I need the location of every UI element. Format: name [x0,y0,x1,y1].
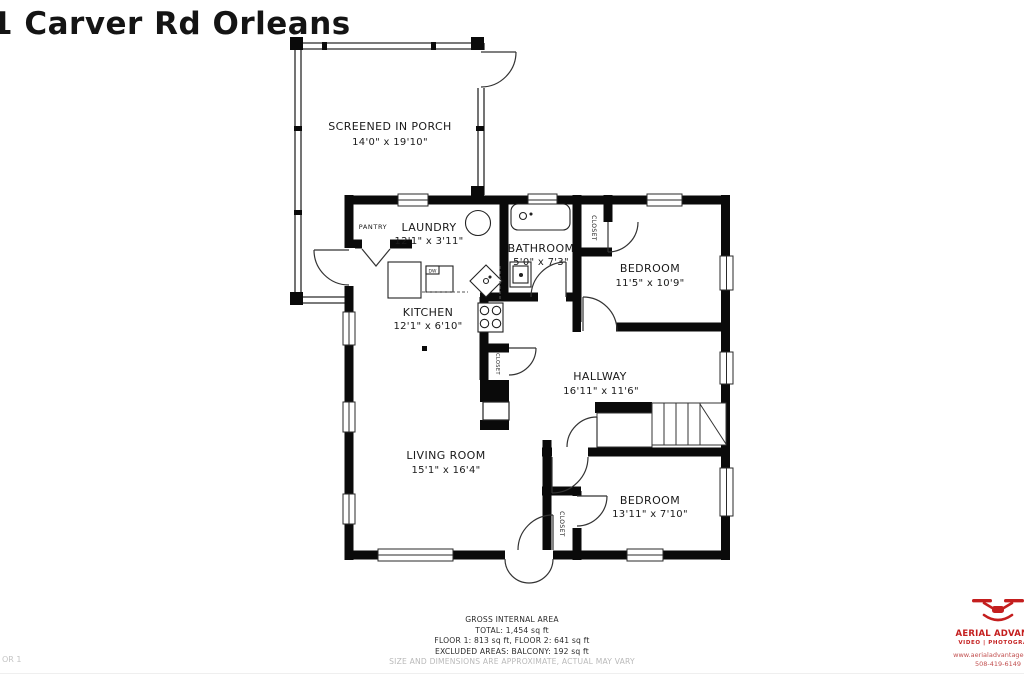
dishwasher-label: DW [429,269,437,275]
washer [466,211,491,236]
porch-posts [290,37,484,305]
closet1-label: CLOSET [590,215,597,241]
room-dims-living: 15'1" x 16'4" [411,465,480,476]
window-bedroom2-right [720,468,733,516]
room-label-kitchen: KITCHEN [403,306,453,319]
room-dims-porch: 14'0" x 19'10" [352,137,428,148]
room-label-hallway: HALLWAY [573,370,627,383]
door-closet1 [608,222,638,252]
window-laundry [398,194,428,206]
window-bedroom1-right [720,256,733,290]
logo-phone: 508-419-6149 [946,660,1024,668]
room-label-living: LIVING ROOM [406,449,485,462]
door-closet3 [509,348,536,375]
window-bedroom2-bottom [627,549,663,561]
window-left-2 [343,402,355,432]
room-dims-laundry: 12'1" x 3'11" [394,236,463,247]
door-understair [567,417,597,447]
logo-tagline: VIDEO | PHOTOGRAPH [946,640,1024,646]
window-left-3 [343,494,355,524]
area-summary: GROSS INTERNAL AREA TOTAL: 1,454 sq ft F… [312,615,712,668]
logo-company-name: AERIAL ADVANTA [946,629,1024,639]
closet2-label: CLOSET [558,511,565,537]
porch-door-opening [474,50,488,88]
room-dims-bedroom2: 13'11" x 7'10" [612,509,688,520]
floor-plan: SCREENED IN PORCH 14'0" x 19'10" PANTRY … [0,0,1024,683]
room-label-pantry: PANTRY [359,223,387,231]
room-dims-bathroom: 5'0" x 7'3" [513,257,569,268]
window-bedroom1-top [647,194,682,206]
room-dims-kitchen: 12'1" x 6'10" [393,321,462,332]
closet3-label: CLOSET [494,353,500,375]
door-pantry-bifold [362,249,390,266]
page: { "title": "1 Carver Rd Orleans", "floor… [0,0,1024,683]
logo-website: www.aerialadvantagecapec [946,651,1024,659]
area-summary-floors: FLOOR 1: 813 sq ft, FLOOR 2: 641 sq ft [312,636,712,647]
footer-divider [0,673,1024,674]
kitchen-sink [470,265,502,297]
window-left-1 [343,312,355,345]
understair-closet [597,413,652,447]
company-logo: AERIAL ADVANTA VIDEO | PHOTOGRAPH www.ae… [946,595,1024,668]
room-label-bedroom2: BEDROOM [620,494,680,507]
window-hallway-right [720,352,733,384]
area-summary-heading: GROSS INTERNAL AREA [312,615,712,626]
room-label-bedroom1: BEDROOM [620,262,680,275]
area-summary-disclaimer: SIZE AND DIMENSIONS ARE APPROXIMATE, ACT… [312,657,712,668]
fridge [388,262,421,298]
bathtub [511,204,570,230]
utility-box [483,402,509,420]
stove [478,303,503,332]
room-dims-hallway: 16'11" x 11'6" [563,386,639,397]
room-label-bathroom: BATHROOM [508,242,575,255]
area-summary-excluded: EXCLUDED AREAS: BALCONY: 192 sq ft [312,647,712,658]
floor-page-label: OR 1 [2,655,22,664]
floor-vent [422,346,427,351]
room-dims-bedroom1: 11'5" x 10'9" [615,278,684,289]
room-label-porch: SCREENED IN PORCH [328,120,451,133]
drone-icon [966,595,1024,625]
area-summary-total: TOTAL: 1,454 sq ft [312,626,712,637]
window-living-bottom [378,549,453,561]
room-label-laundry: LAUNDRY [401,221,456,234]
